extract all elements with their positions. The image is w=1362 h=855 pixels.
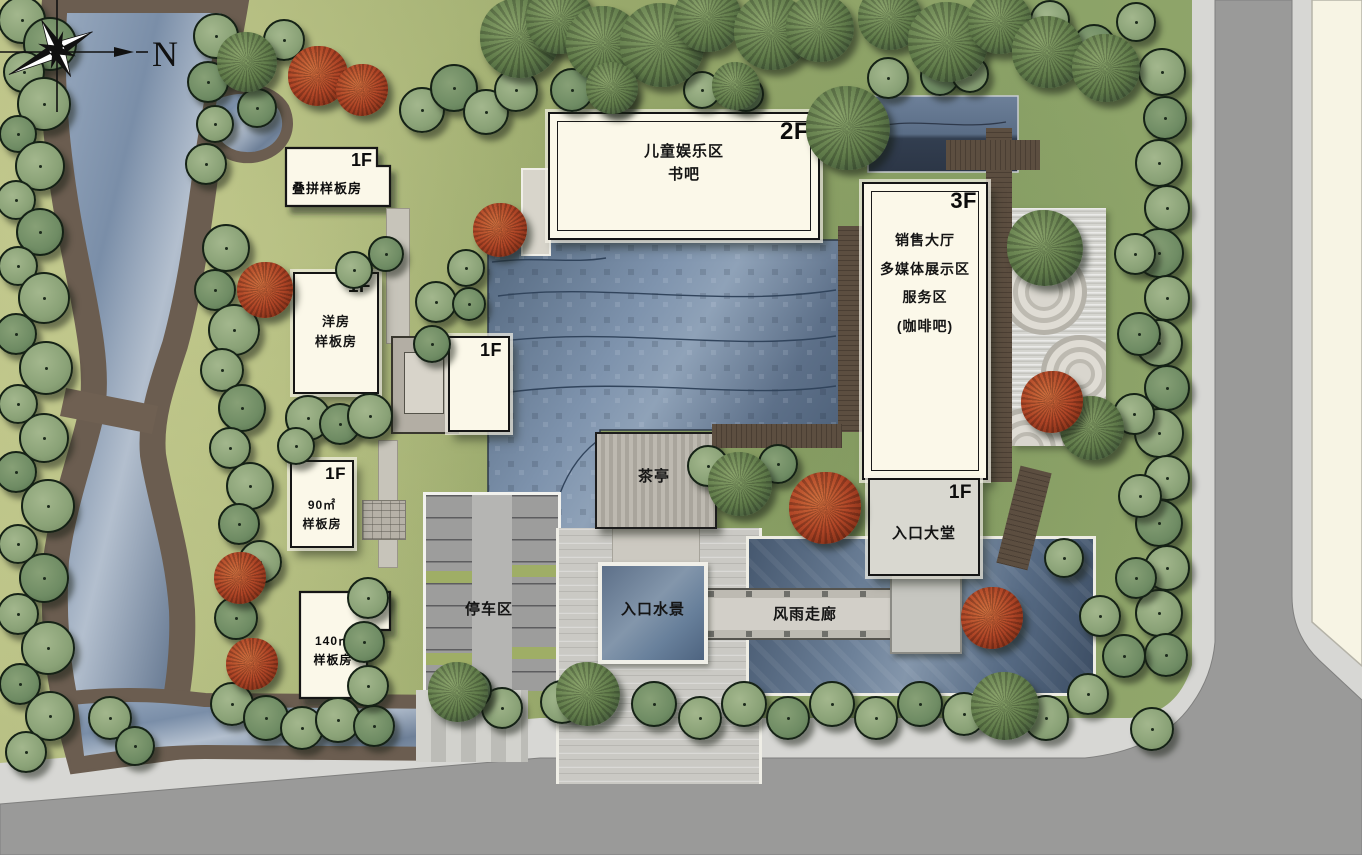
compass-north-arrow bbox=[114, 47, 134, 57]
parking-lot bbox=[423, 492, 561, 691]
zen-raked-circle bbox=[1012, 432, 1044, 446]
wood-deck-north bbox=[946, 140, 1040, 170]
zen-raked-circle bbox=[1025, 273, 1063, 311]
pond-offshoot bbox=[207, 88, 288, 157]
lobby-canopy bbox=[890, 573, 962, 654]
wood-deck-zen-west bbox=[986, 128, 1012, 482]
lobby-floor-label: 1F bbox=[949, 482, 972, 504]
building-m90: 1F 90㎡ 样板房 bbox=[290, 460, 354, 548]
duplex-floor-label: 1F bbox=[336, 150, 372, 171]
terrace-name-label: 洋房 样板房 bbox=[295, 312, 377, 352]
building-small-1f: 1F bbox=[448, 336, 510, 432]
corridor-label: 风雨走廊 bbox=[740, 603, 870, 624]
building-terrace: 1F 洋房 样板房 bbox=[293, 272, 379, 394]
terrace-floor-label: 1F bbox=[348, 276, 371, 298]
stream-pond-south bbox=[70, 695, 452, 764]
small1f-floor-label: 1F bbox=[480, 340, 502, 361]
kids-name-label: 儿童娱乐区 书吧 bbox=[550, 140, 818, 187]
wood-deck-west-of-sales bbox=[838, 226, 862, 432]
compass-star bbox=[9, 20, 93, 77]
zen-raked-circle bbox=[1065, 359, 1095, 389]
duplex-name-label: 叠拼样板房 bbox=[292, 178, 384, 197]
wood-deck-pond-south bbox=[712, 424, 842, 448]
white-path bbox=[521, 168, 551, 256]
building-sales: 3F 销售大厅 多媒体展示区 服务区 (咖啡吧) bbox=[862, 182, 988, 480]
parking-entry-paving bbox=[416, 690, 528, 762]
m140-name-label: 140㎡ 样板房 bbox=[302, 632, 364, 669]
compass-rose: N bbox=[0, 0, 184, 118]
tea-pavilion-label: 茶亭 bbox=[595, 465, 713, 486]
site-plan: 停车区 风雨走廊 入口水景 茶亭 2F 儿童娱乐区 书吧 3F 销售大厅 多媒体… bbox=[0, 0, 1362, 855]
m90-floor-label: 1F bbox=[325, 464, 346, 484]
brick-patio bbox=[362, 500, 406, 540]
m90-name-label: 90㎡ 样板房 bbox=[292, 496, 352, 533]
water-feature-label: 入口水景 bbox=[598, 598, 708, 619]
compass-north-label: N bbox=[152, 34, 178, 74]
lobby-name-label: 入口大堂 bbox=[870, 522, 978, 545]
zen-garden bbox=[1012, 208, 1106, 446]
parking-label: 停车区 bbox=[433, 598, 545, 619]
stone-courtyard-inner bbox=[404, 352, 444, 414]
stone-path-north bbox=[386, 208, 410, 344]
sales-floor-label: 3F bbox=[950, 188, 977, 214]
m140-floor-label: 1F bbox=[344, 598, 382, 619]
tea-pavilion-apron bbox=[612, 525, 700, 565]
sales-name-label: 销售大厅 多媒体展示区 服务区 (咖啡吧) bbox=[864, 226, 986, 341]
parcel-east bbox=[1312, 0, 1362, 666]
building-kids: 2F 儿童娱乐区 书吧 bbox=[548, 112, 820, 240]
building-lobby: 1F 入口大堂 bbox=[868, 478, 980, 576]
